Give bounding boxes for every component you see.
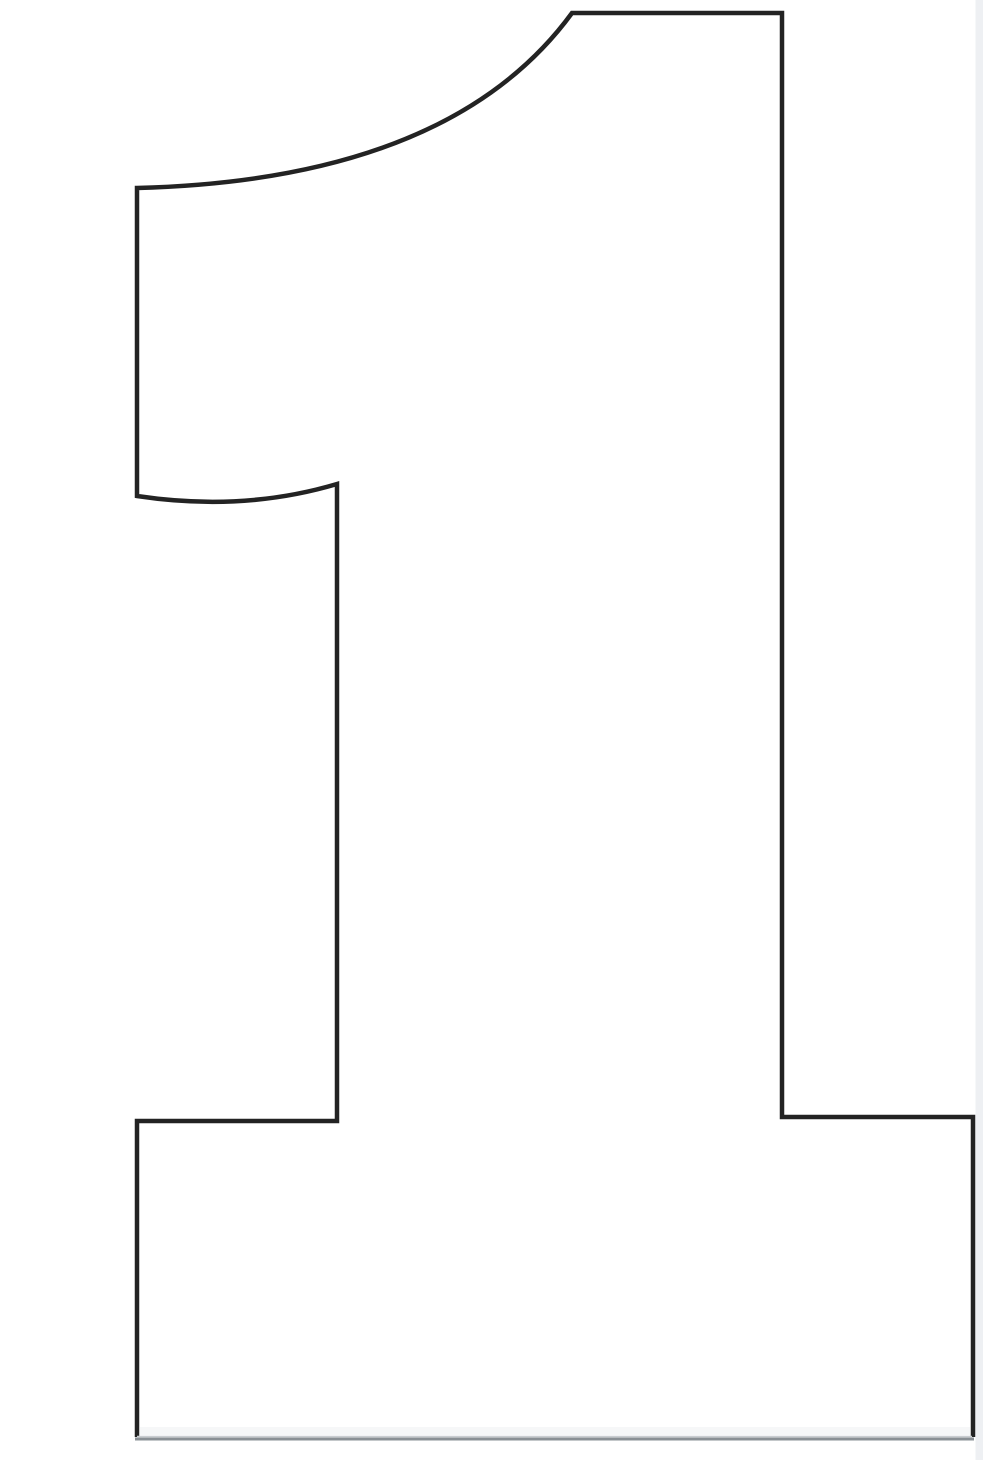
numeral-1-outline-path: [137, 13, 973, 1437]
numeral-1-figure: [0, 0, 985, 1460]
baseline-inner-shade: [140, 1427, 970, 1435]
stencil-page: [0, 0, 985, 1460]
page-edge-strip: [976, 0, 984, 1460]
